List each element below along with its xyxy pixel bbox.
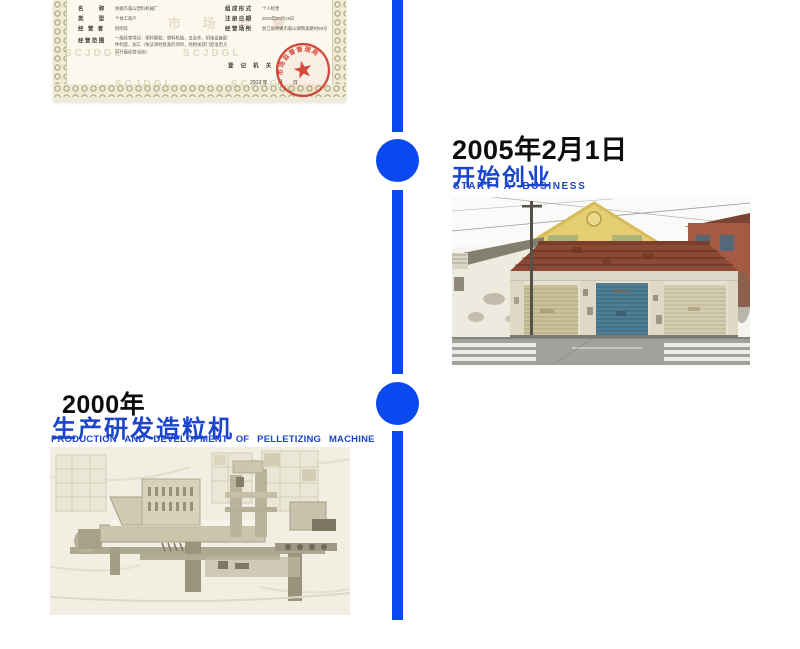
timeline-line-segment: [392, 190, 403, 374]
cert-registrar-label: 登 记 机 关: [228, 61, 274, 69]
cert-field-value: 余姚市临山塑料机械厂: [115, 5, 158, 11]
cert-field-value: 一般经营项目：塑料颗粒、塑料机械、五金件、机电设备配件制造、加工（依法须经批准的…: [115, 36, 230, 56]
cert-field-label: 名 称: [78, 4, 106, 12]
cert-field-label: 类 型: [78, 14, 106, 22]
red-seal-stamp: 市场监督管理局: [269, 36, 338, 105]
pelletizing-machine-photo: [50, 447, 350, 615]
cert-field-label: 经营范围: [78, 36, 106, 44]
cert-field-label: 注册日期: [225, 14, 253, 22]
cert-field-label: 经 营 者: [78, 24, 105, 32]
certificate-watermark: SCJDGL: [115, 79, 174, 90]
old-workshop-building-photo: [452, 197, 750, 365]
cert-field-value: 2019年06月19日: [262, 15, 294, 21]
company-history-timeline-page: { "colors": { "timeline_blue": "#0b49f0"…: [0, 0, 800, 649]
timeline-line-segment: [392, 0, 403, 132]
cert-field-label: 组成形式: [225, 4, 253, 12]
cert-field-label: 经营场所: [225, 24, 253, 32]
cert-field-value: 倪明华: [115, 25, 128, 31]
entry-2005-title-en: START A BUSINESS: [453, 181, 586, 192]
timeline-node-2000: [376, 382, 419, 425]
roller-door-right: [664, 285, 726, 337]
roller-door-middle-blue: [596, 283, 648, 337]
cert-field-value: 个人经营: [262, 5, 279, 11]
business-license-certificate: 市 场 监 督 SCJDGL SCJDGL SCJDGL SCJDGL 名 称 …: [53, 0, 346, 101]
timeline-line-segment: [392, 431, 403, 620]
entry-2000-title-en: PRODUCTION AND DEVELOPMENT OF PELLETIZIN…: [51, 434, 375, 445]
timeline-node-2005: [376, 139, 419, 182]
cert-field-value: 浙江省余姚市临山镇陶家路村88号: [262, 25, 327, 31]
cert-field-value: 个体工商户: [115, 15, 137, 21]
